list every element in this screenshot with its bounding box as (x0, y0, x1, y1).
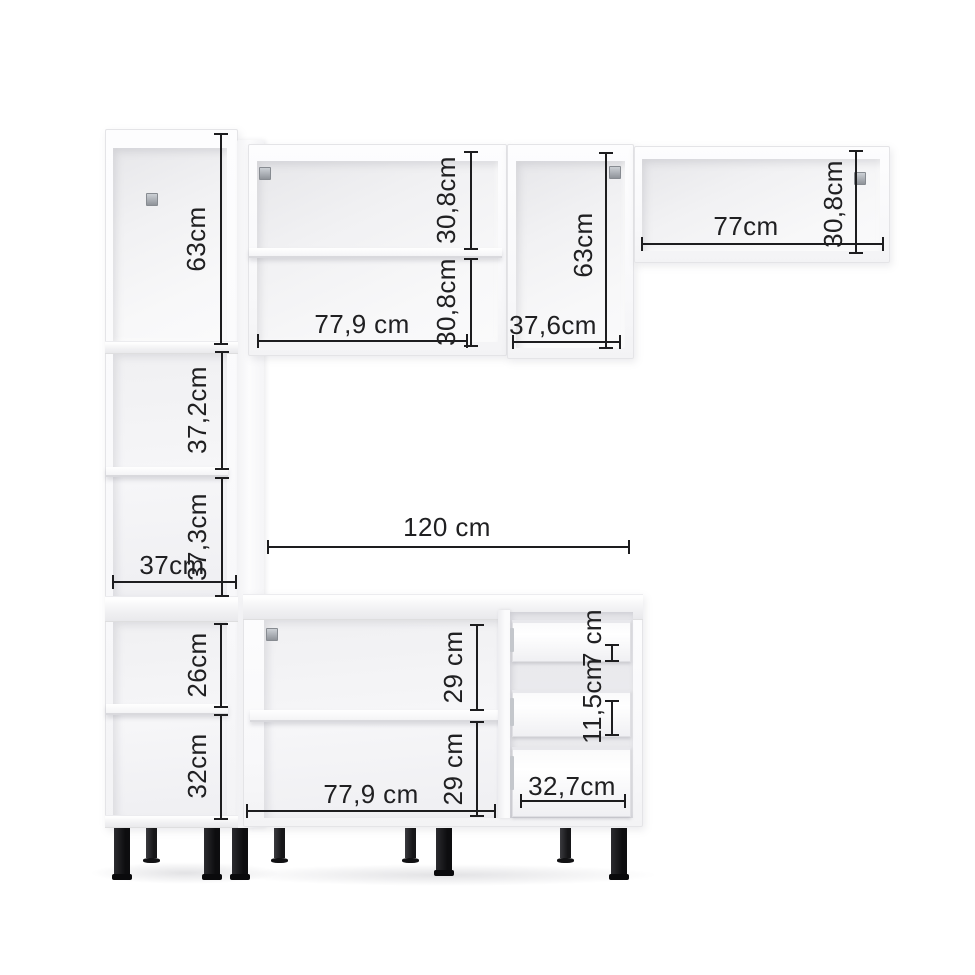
dim-line-tower-upper-height (220, 133, 222, 345)
dim-line-base-lower (476, 721, 478, 817)
dim-label-tower-niche-upper: 37,2cm (184, 366, 210, 454)
cabinet-back-leg (405, 828, 416, 858)
dim-label-tower-upper-height: 63cm (183, 206, 209, 271)
dim-label-base-width: 77,9 cm (323, 781, 418, 807)
dim-line-tower-niche-lower (221, 477, 223, 597)
dim-label-walltall-height: 63cm (570, 212, 596, 277)
base-cabinet-divider (498, 610, 510, 818)
dim-label-wallwide-upper: 30,8cm (433, 156, 459, 244)
dim-label-wallright-width: 77cm (713, 213, 778, 239)
dim-line-tower-width (112, 581, 237, 583)
drawer-middle (512, 690, 631, 737)
drawer-rail (510, 628, 514, 652)
drawer-top (512, 620, 631, 662)
cabinet-front-leg (114, 828, 130, 874)
kitchen-cabinet-dimension-diagram: 63cm 37,2cm 37,3cm 37cm 26cm 32cm 30,8cm… (0, 0, 975, 975)
dim-line-drawer-top (611, 644, 613, 662)
cabinet-back-leg (560, 828, 571, 858)
dim-label-drawer-width: 32,7cm (528, 773, 616, 799)
dim-label-walltall-width: 37,6cm (509, 312, 597, 338)
base-cabinet-shelf (250, 710, 502, 722)
tall-cabinet-base-shelf (106, 704, 228, 715)
drawer-rail (510, 756, 514, 790)
hinge-icon (266, 628, 278, 641)
hinge-icon (259, 167, 271, 180)
dim-line-drawer-middle (611, 700, 613, 736)
dim-line-walltall-height (605, 152, 607, 349)
hinge-icon (146, 193, 158, 206)
cabinet-front-leg (232, 828, 248, 874)
dim-label-base-lower: 29 cm (440, 733, 466, 806)
cabinet-front-leg (436, 828, 452, 870)
dim-line-total-span (267, 546, 630, 548)
dim-line-wallwide-upper (470, 151, 472, 250)
dim-line-tower-base-lower (220, 714, 222, 820)
dim-line-base-upper (476, 624, 478, 711)
dim-label-total-span: 120 cm (403, 514, 491, 540)
cabinet-front-leg (611, 828, 627, 874)
dim-label-tower-base-lower: 32cm (184, 733, 210, 798)
dim-line-wallwide-lower (470, 258, 472, 347)
hinge-icon (609, 166, 621, 179)
dim-label-tower-base-upper: 26cm (184, 632, 210, 697)
dim-label-wallwide-lower: 30,8cm (433, 258, 459, 346)
dim-line-tower-base-upper (220, 623, 222, 708)
dim-line-wallright-height (855, 150, 857, 254)
dim-line-base-width (246, 810, 496, 812)
dim-label-wallright-height: 30,8cm (820, 160, 846, 248)
cabinet-front-leg (204, 828, 220, 874)
dim-line-tower-niche-upper (221, 351, 223, 470)
cabinet-back-leg (146, 828, 157, 858)
drawer-rail (510, 698, 514, 726)
dim-label-wallwide-width: 77,9 cm (314, 311, 409, 337)
dim-label-drawer-middle: 11,5cm (579, 658, 605, 744)
dim-label-tower-width: 37cm (139, 552, 204, 578)
cabinet-back-leg (274, 828, 285, 858)
dim-label-base-upper: 29 cm (440, 631, 466, 704)
tall-cabinet-bottom-band (105, 815, 238, 828)
tall-cabinet-niche-shelf (106, 467, 228, 477)
tall-cabinet-base-top-band (105, 596, 238, 622)
